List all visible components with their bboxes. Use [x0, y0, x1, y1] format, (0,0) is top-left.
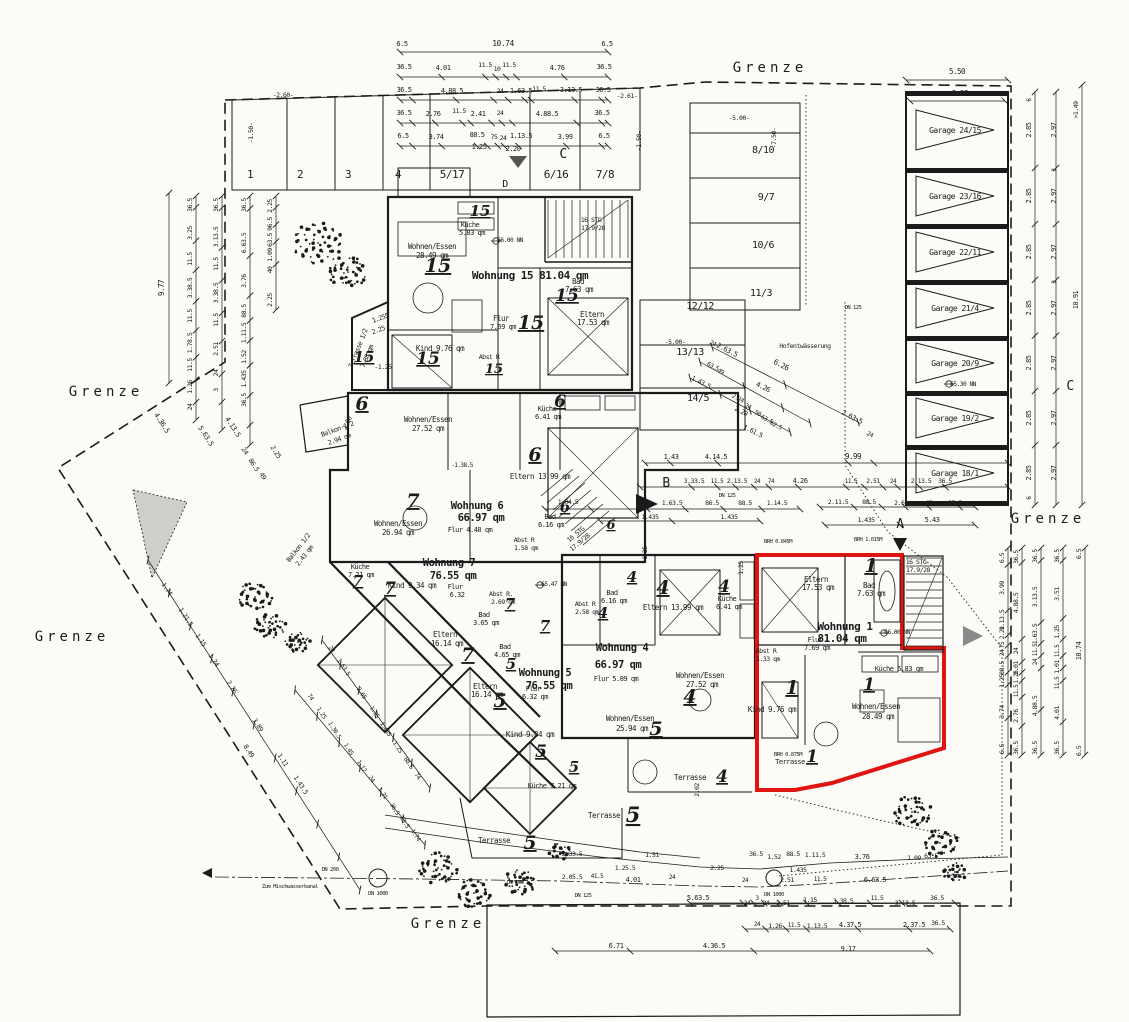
plan-text: 1.01: [1053, 660, 1061, 674]
dimension-tick: [784, 380, 787, 389]
plan-text: 2.51: [776, 899, 790, 907]
plan-text: 11.5: [478, 61, 492, 69]
plan-text: 1.09: [266, 248, 274, 262]
plan-text: 4.26: [754, 380, 771, 394]
plan-text: 4.36.5: [703, 942, 726, 950]
plan-text: 4.76: [550, 64, 565, 72]
plan-text: 17.53 qm: [577, 318, 610, 327]
plan-text: -1.50-: [247, 123, 255, 143]
plan-text: 2.97: [1050, 355, 1058, 370]
plan-text: 2.51: [780, 876, 794, 884]
plan-text: 74: [413, 772, 423, 782]
plan-text: 1.13.5: [510, 132, 533, 140]
plan-text: Wohnung 6: [451, 500, 504, 512]
tree-icon: [239, 582, 274, 610]
plan-text: 36.5: [1053, 549, 1061, 563]
plan-text: 2: [297, 168, 303, 181]
garage-label: Garage 19/2: [931, 414, 979, 423]
section-arrow-icon: [963, 626, 983, 646]
furniture-rect: [740, 604, 754, 638]
plan-text: 1.21.5: [177, 606, 195, 628]
furniture-circle: [633, 760, 657, 784]
plan-text: 3.38.5: [186, 277, 194, 298]
plan-text: 36.5: [938, 477, 952, 485]
plan-text: 75: [999, 641, 1006, 648]
plan-text: 6: [560, 498, 571, 516]
plan-text: 36.5: [240, 393, 248, 407]
plan-text: 14/5: [687, 393, 710, 404]
plan-text: 3.13.5: [1031, 586, 1039, 607]
plan-text: 6.32 qm: [522, 693, 548, 701]
plan-text: 11.5: [814, 876, 827, 883]
plan-text: 1.26: [186, 380, 194, 394]
tree-icon: [295, 222, 342, 265]
plan-text: -5.00-: [665, 338, 685, 346]
plan-text: 5.28: [952, 89, 969, 98]
plan-text: 2.25: [710, 864, 724, 872]
plan-text: DN 125: [845, 305, 862, 311]
plan-outline: [640, 300, 745, 430]
plan-text: 6.63.5: [240, 232, 248, 253]
plan-text: 16 STG: [906, 558, 927, 566]
plan-text: 24: [999, 649, 1006, 656]
plan-text: 2.76: [1012, 709, 1020, 723]
plan-text: 11.5: [1032, 643, 1039, 656]
plan-text: DN 1000: [368, 891, 388, 897]
boundary-label: Grenze: [69, 384, 144, 400]
plan-text: 6: [1026, 98, 1033, 102]
plan-text: 2.51: [866, 477, 880, 485]
plan-text: Eltern 13.99 qm: [643, 603, 704, 612]
plan-text: 10/6: [752, 240, 775, 251]
plan-text: C: [1066, 379, 1073, 394]
tree-icon: [458, 878, 492, 908]
garage-wall-bar: [906, 280, 1008, 285]
dimension-tick: [295, 686, 296, 695]
plan-text: -1.38.5: [451, 462, 474, 469]
plan-text: 74: [306, 693, 316, 703]
plan-text: 36.5: [597, 63, 612, 71]
plan-text: 2: [1051, 280, 1058, 284]
plan-text: 24: [763, 900, 770, 907]
plan-text: 65: [926, 500, 933, 507]
plan-text: 4: [718, 577, 730, 597]
plan-text: 2.85: [1025, 244, 1033, 259]
plan-text: 7: [353, 572, 364, 590]
plan-text: 16.14 qm: [431, 639, 464, 648]
plan-text: Wohnung 4: [596, 642, 649, 654]
plan-text: Wohnen/Essen: [606, 714, 654, 723]
plan-text: 3: [755, 895, 759, 902]
plan-text: 11.5: [502, 61, 516, 69]
plan-outline: [133, 490, 187, 578]
plan-text: 3.74: [429, 133, 444, 141]
plan-text: 15: [470, 202, 491, 220]
plan-text: 10.74: [492, 39, 514, 48]
plan-text: 6: [528, 444, 541, 466]
plan-text: 6: [606, 518, 615, 533]
plan-text: 35.5: [948, 499, 962, 507]
plan-text: Flur: [526, 685, 541, 693]
plan-text: Abst R: [756, 647, 777, 655]
plan-text: 36.5: [1053, 741, 1061, 755]
plan-text: Bad: [478, 611, 489, 619]
plan-text: 2.85: [1025, 122, 1033, 137]
plan-text: 3.76: [855, 853, 870, 861]
plan-text: 2.11.5: [828, 498, 849, 506]
plan-text: 3.13.5: [212, 226, 220, 247]
plan-text: 6.5: [601, 40, 612, 48]
plan-text: 5: [493, 690, 506, 712]
plan-text: 24: [754, 921, 761, 928]
plan-text: 2.13.5: [727, 477, 748, 485]
plan-text: 5: [569, 758, 579, 776]
garage-label: Garage 24/15: [929, 126, 981, 135]
plan-text: 49: [257, 471, 268, 482]
plan-text: 63.5: [924, 852, 938, 860]
plan-text: 13/13: [676, 347, 704, 358]
plan-text: 1.31: [376, 786, 389, 801]
garage-wall-bar: [906, 336, 1008, 341]
plan-text: 3.33.5: [684, 477, 705, 485]
plan-text: 6: [1026, 496, 1033, 500]
plan-text: 88.5: [402, 756, 415, 771]
plan-text: 3: [212, 388, 220, 392]
plan-text: Wohnen/Essen: [676, 671, 724, 680]
plan-text: 2.25: [266, 199, 274, 213]
plan-text: 1: [863, 675, 875, 695]
garage-label: Garage 20/9: [931, 359, 979, 368]
plan-text: 3.74: [998, 705, 1006, 719]
plan-text: 11.5: [186, 358, 194, 372]
plan-text: 2.97: [1050, 244, 1058, 259]
plan-text: 3.13.5: [560, 86, 583, 94]
plan-text: 13.5: [398, 815, 411, 830]
plan-text: 36.5: [595, 109, 610, 117]
plan-text: 1.25: [998, 674, 1006, 688]
plan-text: Kind 9.76 qm: [748, 705, 797, 714]
plan-text: 2.25: [269, 444, 283, 460]
plan-text: 36.5: [388, 802, 401, 817]
plan-text: 2.26: [225, 679, 239, 695]
plan-text: 25.94 qm: [616, 724, 649, 733]
plan-text: Kind 9.34 qm: [506, 730, 555, 739]
plan-text: 2.85: [1025, 300, 1033, 315]
plan-text: 5.43: [925, 516, 940, 524]
plan-text: 6.16 qm: [538, 521, 564, 529]
plan-text: 9.99: [845, 452, 861, 461]
plan-text: 2.97: [1050, 188, 1058, 203]
plan-outline: [460, 798, 622, 858]
plan-text: 62.5: [769, 420, 784, 432]
plan-text: 2.41: [471, 110, 486, 118]
plan-text: 5.63.5: [196, 424, 215, 447]
plan-text: 2.58 qm: [575, 608, 599, 616]
garage-label: Garage 22/11: [929, 248, 981, 257]
plan-text: 1.11: [276, 752, 290, 768]
plan-text: 3.76: [240, 274, 248, 288]
plan-text: DN 125: [575, 893, 592, 899]
dimension-tick: [781, 403, 783, 412]
plan-text: 66.00 NN: [884, 629, 911, 636]
plan-text: 36.5: [1031, 549, 1039, 563]
section-arrow-icon: [893, 538, 907, 551]
plan-text: 88.5: [786, 850, 800, 858]
plan-text: Wohnung 5: [519, 667, 572, 679]
plan-text: 6.41 qm: [716, 603, 742, 611]
plan-text: 41.5: [591, 873, 604, 880]
plan-text: 11.5: [1054, 644, 1061, 657]
plan-text: Abst R: [479, 353, 500, 361]
plan-text: 1.78.5: [186, 332, 194, 353]
plan-text: 7: [505, 595, 516, 613]
plan-text: 1.435: [641, 513, 659, 521]
plan-text: Bad: [499, 643, 510, 651]
plan-text: 2.85: [1025, 410, 1033, 425]
plan-text: 6.63.5: [864, 876, 887, 884]
plan-text: 2.97: [1050, 465, 1058, 480]
plan-text: 17.9/28: [906, 566, 930, 574]
plan-text: 4: [395, 168, 402, 181]
plan-text: 3.65: [355, 686, 368, 701]
plan-text: 1.45: [342, 742, 355, 757]
plan-text: 11.5: [452, 107, 466, 115]
plan-text: 2.97: [1050, 300, 1058, 315]
plan-text: 8.49: [242, 743, 256, 759]
plan-text: Wohnen/Essen: [374, 519, 422, 528]
plan-text: Flur 5.89 qm: [594, 675, 639, 683]
plan-text: 1.12: [355, 759, 368, 774]
plan-text: 17.9/28: [581, 224, 605, 232]
plan-text: 1.435: [857, 516, 875, 524]
dimension-tick: [359, 886, 361, 895]
plan-text: -2.61-: [617, 92, 637, 100]
plan-text: 24: [742, 877, 749, 884]
plan-text: 36.5: [240, 198, 248, 212]
plan-text: 15: [518, 312, 544, 334]
garage-label: Garage 23/16: [929, 192, 981, 201]
plan-text: 36.5: [931, 919, 945, 927]
plan-text: 11.5: [212, 313, 220, 327]
plan-text: Wohnen/Essen: [404, 415, 452, 424]
plan-text: 6.5: [396, 40, 407, 48]
plan-text: Küche 5.83 qm: [875, 665, 924, 673]
plan-text: 1.25: [641, 546, 649, 560]
plan-text: 1.63.5: [1031, 623, 1039, 644]
plan-text: 28.49 qm: [862, 712, 895, 721]
plan-text: 66.97 qm: [595, 659, 642, 671]
plan-text: Abst R: [575, 600, 596, 608]
plan-text: 24: [497, 109, 504, 117]
furniture-circle: [369, 869, 387, 887]
plan-text: 1.11.5: [240, 322, 248, 343]
plan-text: 1.61.5: [742, 423, 764, 440]
plan-text: 4.88.5: [1012, 592, 1020, 613]
plan-text: BRH 1.015M: [854, 537, 883, 543]
plan-text: 5.83 qm: [459, 229, 485, 237]
plan-text: 1: [864, 555, 877, 577]
plan-text: 7: [406, 490, 419, 512]
plan-text: 4.88.5: [536, 110, 559, 118]
dimension-tick: [338, 853, 340, 862]
section-arrow-icon: [202, 868, 212, 878]
plan-text: 88.5: [998, 661, 1006, 675]
plan-text: 2.20: [506, 145, 521, 153]
plan-outline: [487, 903, 960, 1017]
plan-text: 1.26: [1013, 670, 1020, 683]
dimension-tick: [429, 784, 430, 793]
plan-outline: [215, 871, 1008, 887]
furniture-rect: [605, 396, 635, 410]
plan-text: 16 STG: [581, 216, 602, 224]
plan-text: 40: [266, 266, 274, 273]
plan-text: 11.5: [788, 922, 801, 929]
plan-text: 9.77: [157, 280, 166, 296]
garage-stalls: Garage 24/15Garage 23/16Garage 22/11Gara…: [916, 110, 994, 493]
plan-text: 24: [754, 478, 761, 485]
plan-text: >1.49: [1072, 101, 1080, 119]
plan-text: 6.5: [1075, 745, 1083, 756]
plan-text: 24: [239, 446, 250, 457]
plan-text: Wohnen/Essen: [852, 702, 900, 711]
boundary-label: Grenze: [35, 629, 110, 645]
plan-text: 1: [785, 677, 798, 699]
plan-text: 6.71: [609, 942, 624, 950]
plan-text: Eltern 13.99 qm: [510, 472, 571, 481]
garage-wall-bar: [906, 391, 1008, 396]
plan-text: 36.5: [1012, 741, 1020, 755]
plan-text: 1.74: [160, 581, 174, 597]
plan-text: 1: [247, 168, 253, 181]
furniture-circle: [413, 283, 443, 313]
tree-icon: [254, 613, 288, 638]
plan-text: 17.53 qm: [802, 583, 835, 592]
plan-text: 4.01: [436, 64, 451, 72]
plan-text: 4.01: [626, 876, 641, 884]
plan-text: 3.51: [1053, 587, 1061, 601]
plan-text: 2.20: [999, 626, 1006, 639]
plan-text: 11.5: [711, 478, 724, 485]
plan-text: 88.5: [738, 499, 752, 507]
plan-text: 3: [345, 168, 351, 181]
plan-text: 24: [1013, 647, 1020, 654]
plan-text: 2.85: [1025, 465, 1033, 480]
plan-text: 9/7: [758, 192, 775, 203]
plan-text: Flur 4.48 qm: [448, 526, 493, 534]
plan-text: 76.55 qm: [430, 570, 477, 582]
plan-text: 3.38.5: [833, 897, 854, 905]
plan-text: 7.69 qm: [804, 644, 830, 652]
plan-text: 5: [626, 802, 641, 827]
plan-text: Küche: [461, 221, 480, 229]
plan-text: 2.63.5: [715, 342, 739, 359]
boundary-label: Grenze: [733, 60, 808, 76]
plan-text: -2.60-: [273, 91, 293, 99]
plan-text: 4: [627, 568, 637, 586]
plan-text: 4: [656, 577, 669, 599]
plan-text: 2.05.5: [562, 873, 583, 881]
plan-text: 5.63.5: [687, 894, 710, 902]
plan-text: 11.5: [186, 252, 194, 266]
plan-text: 3.99: [558, 133, 573, 141]
plan-text: 24: [744, 900, 751, 907]
dimension-tick: [317, 820, 319, 829]
plan-text: -5.00-: [729, 114, 749, 122]
dimension-tick: [339, 738, 340, 747]
plan-text: 24: [186, 403, 194, 410]
plan-text: 12/12: [686, 301, 714, 312]
plan-text: 5: [535, 742, 547, 762]
plan-text: 15: [555, 286, 579, 306]
plan-text: -1.50-: [635, 131, 643, 151]
plan-text: -1.25: [374, 363, 392, 371]
plan-text: 2.85: [1025, 355, 1033, 370]
plan-text: DN 125: [719, 493, 736, 499]
plan-text: 2.97: [1050, 122, 1058, 137]
plan-text: 5: [506, 655, 516, 673]
plan-text: 36.5: [930, 894, 944, 902]
plan-text: 6: [554, 392, 566, 412]
plan-text: Küche: [351, 563, 370, 571]
plan-text: Hofentwässerung: [779, 342, 831, 350]
plan-text: 2.97: [1050, 410, 1058, 425]
plan-text: 1.58 qm: [514, 544, 538, 552]
plan-text: 24: [500, 134, 507, 142]
plan-text: Eltern: [433, 630, 457, 639]
plan-text: 1.09: [907, 854, 921, 862]
plan-text: 1.435: [378, 721, 393, 739]
garage-wall-bar: [906, 168, 1008, 173]
plan-text: 7: [540, 617, 551, 635]
plan-text: Terrasse: [478, 836, 511, 845]
garage-wall-bar: [906, 445, 1008, 450]
plan-text: 6.5: [598, 132, 609, 140]
plan-text: 11.5: [212, 257, 220, 271]
plan-text: Terrasse: [588, 811, 621, 820]
plan-text: 24: [497, 87, 504, 95]
plan-text: 4.26: [793, 477, 808, 485]
dimension-tick: [425, 841, 426, 850]
plan-text: 6.5: [397, 132, 408, 140]
plan-text: 2.63.5: [840, 409, 864, 426]
dimension-tick: [809, 419, 811, 428]
plan-text: 2.51: [212, 342, 220, 356]
plan-text: 3.65 qm: [473, 619, 499, 627]
plan-text: 1: [806, 747, 818, 767]
plan-text: 15: [485, 362, 503, 377]
plan-text: 1.25: [391, 740, 404, 755]
plan-text: 6.32: [450, 591, 465, 599]
plan-text: 6.5: [998, 743, 1006, 754]
plan-text: 2.85: [1025, 188, 1033, 203]
plan-text: 10.74: [1075, 641, 1083, 660]
plan-text: 2.13.5: [911, 477, 932, 485]
plan-text: 36.5: [397, 63, 412, 71]
plan-text: 36.5: [1031, 741, 1039, 755]
plan-text: 3.38.5: [212, 282, 220, 303]
plan-text: 4.13.5: [223, 415, 242, 438]
plan-text: 2.02: [693, 783, 701, 797]
plan-text: 24: [890, 478, 897, 485]
plan-text: 36.5: [212, 198, 220, 212]
plan-text: 6: [355, 393, 368, 415]
plan-text: A: [896, 517, 904, 532]
plan-text: 3.13.5: [895, 899, 916, 907]
plan-text: -7.50-: [770, 128, 778, 148]
plan-text: 86.5: [247, 457, 261, 473]
plan-text: 88.5: [240, 304, 248, 318]
boundary-label: Grenze: [1011, 511, 1086, 527]
